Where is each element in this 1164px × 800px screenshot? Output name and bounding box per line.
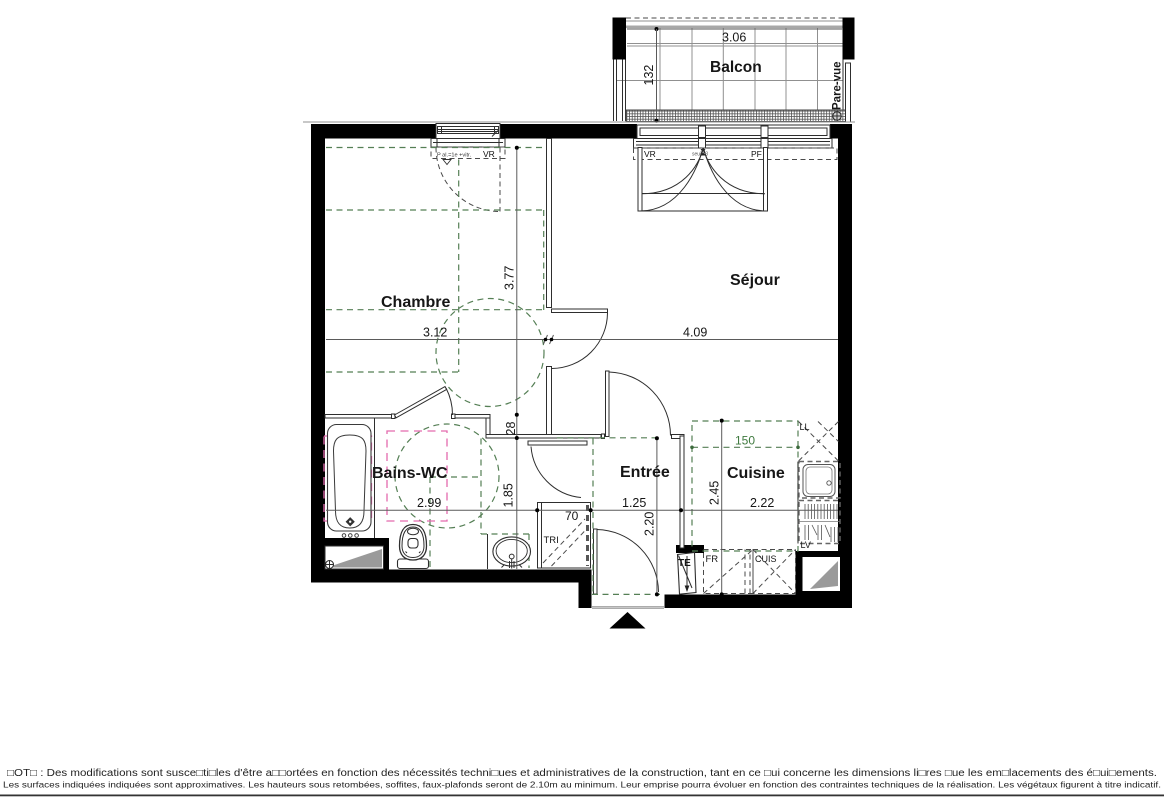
svg-text:28: 28 [504, 422, 518, 436]
svg-text:Entrée: Entrée [620, 464, 670, 481]
svg-text:□OT□ : Des modifications sont: □OT□ : Des modifications sont susce□ti□l… [7, 768, 1157, 779]
svg-text:3.12: 3.12 [423, 326, 447, 340]
svg-text:Chambre: Chambre [381, 294, 450, 311]
svg-text:FR: FR [706, 554, 719, 565]
svg-text:Séjour: Séjour [730, 272, 780, 289]
svg-text:Pare-vue: Pare-vue [832, 61, 844, 110]
svg-text:CUIS: CUIS [755, 554, 777, 564]
svg-text:Cuisine: Cuisine [727, 465, 785, 482]
svg-text:1.85: 1.85 [502, 483, 516, 507]
svg-text:VR: VR [483, 149, 495, 159]
svg-text:2.20: 2.20 [643, 512, 657, 536]
svg-text:2.99: 2.99 [417, 496, 441, 510]
svg-text:LV: LV [801, 540, 811, 550]
svg-text:Balcon: Balcon [710, 59, 762, 76]
svg-text:132: 132 [642, 65, 656, 86]
svg-text:3.06: 3.06 [722, 31, 746, 45]
svg-text:2.45: 2.45 [708, 481, 722, 505]
svg-text:1.25: 1.25 [622, 496, 646, 510]
svg-text:Bains-WC: Bains-WC [372, 465, 448, 482]
svg-text:2.22: 2.22 [750, 496, 774, 510]
svg-text:TE: TE [678, 558, 691, 569]
svg-text:150: 150 [735, 434, 755, 448]
svg-text:PF: PF [751, 149, 762, 159]
svg-text:70: 70 [565, 509, 579, 523]
svg-text:TRI: TRI [544, 535, 559, 546]
svg-text:VR: VR [644, 149, 656, 159]
svg-text:P al.=1e +vitr.: P al.=1e +vitr. [437, 153, 472, 159]
svg-text:LL: LL [800, 422, 810, 432]
svg-text:4.09: 4.09 [683, 326, 707, 340]
svg-text:3.77: 3.77 [503, 266, 517, 290]
svg-text:Les surfaces indiquées indiqué: Les surfaces indiquées indiquées sont ap… [3, 780, 1161, 790]
